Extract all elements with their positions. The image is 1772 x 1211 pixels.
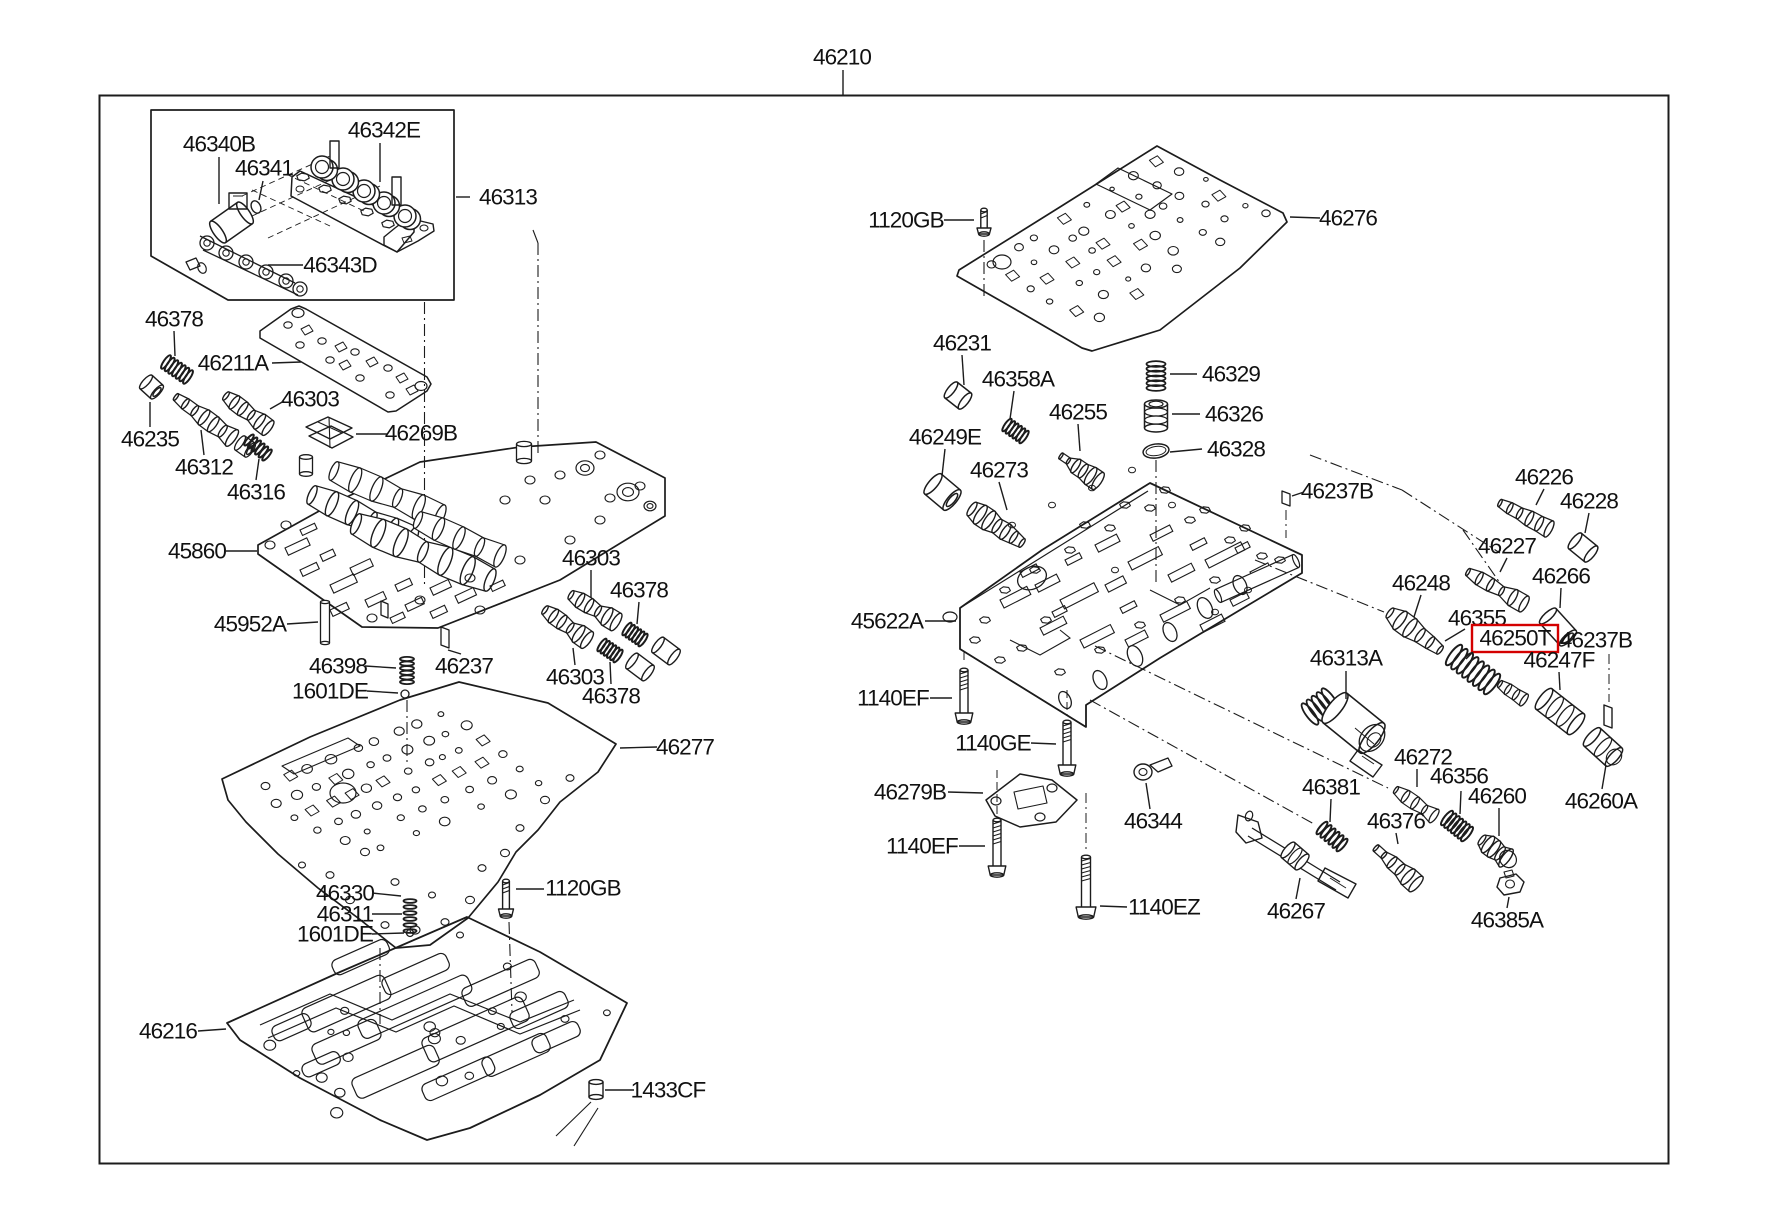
svg-text:46211A: 46211A [198, 351, 269, 376]
svg-text:46266: 46266 [1532, 564, 1590, 589]
svg-text:46237: 46237 [435, 654, 493, 679]
svg-text:45952A: 45952A [214, 612, 287, 637]
svg-text:46326: 46326 [1205, 402, 1263, 427]
svg-text:46378: 46378 [610, 578, 668, 603]
svg-text:46260: 46260 [1468, 784, 1526, 809]
svg-text:46343D: 46343D [303, 253, 377, 278]
svg-text:46279B: 46279B [874, 780, 946, 805]
svg-text:46249E: 46249E [909, 425, 982, 450]
svg-text:46216: 46216 [139, 1019, 197, 1044]
svg-text:46329: 46329 [1202, 362, 1260, 387]
svg-text:46378: 46378 [145, 307, 203, 332]
svg-text:46210: 46210 [813, 45, 871, 70]
svg-text:46269B: 46269B [385, 421, 457, 446]
svg-text:46247F: 46247F [1524, 648, 1595, 673]
svg-text:46376: 46376 [1367, 809, 1425, 834]
svg-text:46273: 46273 [970, 458, 1028, 483]
svg-text:46398: 46398 [309, 654, 367, 679]
svg-text:1601DE: 1601DE [297, 922, 374, 947]
svg-text:46316: 46316 [227, 480, 285, 505]
svg-text:46340B: 46340B [183, 132, 255, 157]
svg-text:46226: 46226 [1515, 465, 1573, 490]
svg-text:1140EZ: 1140EZ [1128, 895, 1201, 920]
svg-text:1120GB: 1120GB [545, 876, 621, 901]
svg-text:46358A: 46358A [982, 367, 1055, 392]
svg-text:1140EF: 1140EF [857, 686, 929, 711]
svg-text:46328: 46328 [1207, 437, 1265, 462]
svg-text:1140GE: 1140GE [955, 731, 1031, 756]
svg-text:46235: 46235 [121, 427, 179, 452]
svg-text:45622A: 45622A [851, 609, 924, 634]
svg-text:46313A: 46313A [1310, 646, 1383, 671]
svg-text:46303: 46303 [281, 387, 339, 412]
svg-text:46344: 46344 [1124, 809, 1182, 834]
svg-text:1120GB: 1120GB [868, 208, 944, 233]
svg-text:46255: 46255 [1049, 400, 1107, 425]
svg-text:46312: 46312 [175, 455, 233, 480]
svg-text:1601DE: 1601DE [292, 679, 369, 704]
svg-text:1140EF: 1140EF [886, 834, 958, 859]
svg-text:46227: 46227 [1478, 534, 1536, 559]
svg-text:46276: 46276 [1319, 206, 1377, 231]
svg-text:46303: 46303 [562, 546, 620, 571]
svg-text:46385A: 46385A [1471, 908, 1544, 933]
svg-text:46313: 46313 [479, 185, 537, 210]
svg-text:46341: 46341 [235, 156, 293, 181]
svg-text:46248: 46248 [1392, 571, 1450, 596]
svg-text:46260A: 46260A [1565, 789, 1638, 814]
svg-text:46277: 46277 [656, 735, 714, 760]
svg-text:46342E: 46342E [348, 118, 421, 143]
svg-text:46237B: 46237B [1301, 479, 1373, 504]
svg-text:46381: 46381 [1302, 775, 1360, 800]
svg-text:46378: 46378 [582, 684, 640, 709]
svg-text:1433CF: 1433CF [631, 1078, 706, 1103]
svg-text:45860: 45860 [168, 539, 226, 564]
svg-text:46231: 46231 [933, 331, 991, 356]
svg-text:46228: 46228 [1560, 489, 1618, 514]
svg-text:46267: 46267 [1267, 899, 1325, 924]
